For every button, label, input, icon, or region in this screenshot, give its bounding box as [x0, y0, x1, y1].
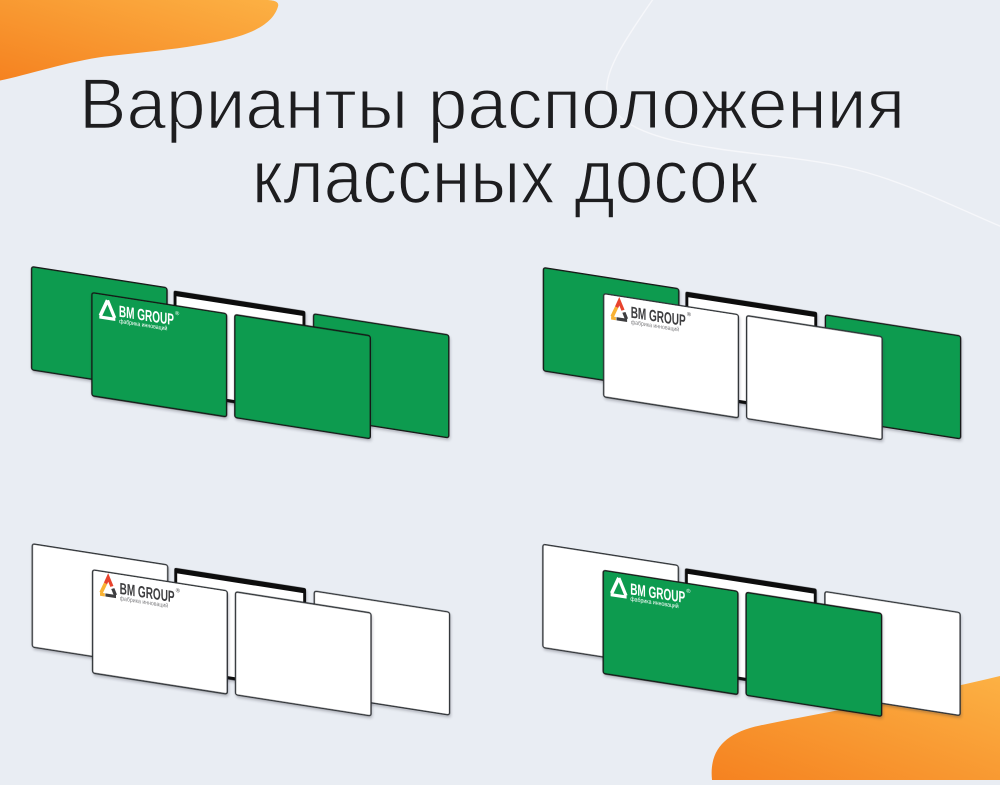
svg-text:классных досок: классных досок	[252, 135, 758, 220]
svg-text:Варианты расположения: Варианты расположения	[79, 64, 905, 144]
